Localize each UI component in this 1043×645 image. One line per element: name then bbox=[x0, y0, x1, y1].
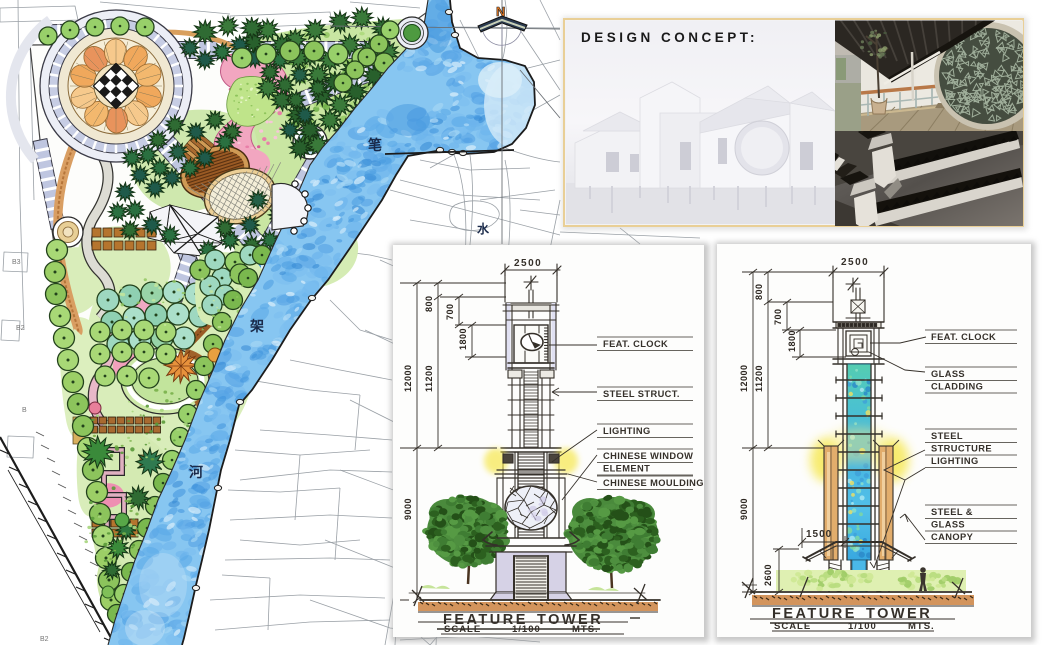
svg-text:1/100: 1/100 bbox=[512, 624, 541, 635]
svg-text:GLASS: GLASS bbox=[931, 520, 965, 530]
svg-text:MTS.: MTS. bbox=[572, 624, 599, 635]
svg-text:CLADDING: CLADDING bbox=[931, 382, 983, 392]
svg-text:12000: 12000 bbox=[403, 364, 413, 392]
svg-text:STRUCTURE: STRUCTURE bbox=[931, 444, 992, 454]
svg-text:1800: 1800 bbox=[787, 330, 797, 352]
svg-text:12000: 12000 bbox=[739, 364, 749, 392]
svg-text:B2: B2 bbox=[40, 636, 49, 643]
svg-text:FEAT. CLOCK: FEAT. CLOCK bbox=[931, 332, 996, 342]
svg-text:B2: B2 bbox=[16, 325, 25, 332]
svg-text:B: B bbox=[22, 407, 27, 414]
svg-text:1800: 1800 bbox=[458, 328, 468, 350]
svg-text:700: 700 bbox=[445, 303, 455, 320]
svg-text:河: 河 bbox=[189, 464, 203, 480]
svg-text:STEEL: STEEL bbox=[931, 431, 963, 441]
svg-text:STEEL &: STEEL & bbox=[931, 507, 973, 517]
svg-text:800: 800 bbox=[754, 283, 764, 300]
svg-text:STEEL STRUCT.: STEEL STRUCT. bbox=[603, 389, 680, 399]
svg-text:800: 800 bbox=[424, 295, 434, 312]
svg-text:2500: 2500 bbox=[841, 257, 869, 268]
svg-text:DESIGN CONCEPT:: DESIGN CONCEPT: bbox=[581, 30, 758, 45]
svg-text:9000: 9000 bbox=[739, 498, 749, 520]
svg-text:CHINESE WINDOW: CHINESE WINDOW bbox=[603, 451, 693, 461]
svg-text:9000: 9000 bbox=[403, 498, 413, 520]
svg-text:1500: 1500 bbox=[806, 529, 832, 540]
svg-text:11200: 11200 bbox=[424, 365, 434, 392]
svg-text:B3: B3 bbox=[12, 259, 21, 266]
svg-text:CHINESE MOULDING: CHINESE MOULDING bbox=[603, 478, 704, 488]
svg-text:TOWER: TOWER bbox=[866, 606, 932, 622]
svg-text:笔: 笔 bbox=[368, 137, 382, 153]
svg-text:LIGHTING: LIGHTING bbox=[603, 426, 651, 436]
svg-text:水: 水 bbox=[477, 221, 490, 236]
svg-text:MTS.: MTS. bbox=[908, 621, 935, 632]
svg-text:FEATURE: FEATURE bbox=[772, 606, 857, 622]
svg-text:SCALE: SCALE bbox=[444, 624, 481, 635]
svg-text:CANOPY: CANOPY bbox=[931, 532, 974, 542]
svg-text:LIGHTING: LIGHTING bbox=[931, 456, 979, 466]
svg-text:1/100: 1/100 bbox=[848, 621, 877, 632]
svg-text:SCALE: SCALE bbox=[774, 621, 811, 632]
svg-text:GLASS: GLASS bbox=[931, 369, 965, 379]
svg-text:FEAT. CLOCK: FEAT. CLOCK bbox=[603, 339, 668, 349]
svg-text:2500: 2500 bbox=[514, 258, 542, 269]
svg-text:架: 架 bbox=[249, 318, 264, 334]
svg-text:ELEMENT: ELEMENT bbox=[603, 464, 650, 474]
svg-text:2600: 2600 bbox=[763, 564, 773, 586]
svg-text:700: 700 bbox=[773, 308, 783, 325]
svg-text:11200: 11200 bbox=[754, 365, 764, 392]
